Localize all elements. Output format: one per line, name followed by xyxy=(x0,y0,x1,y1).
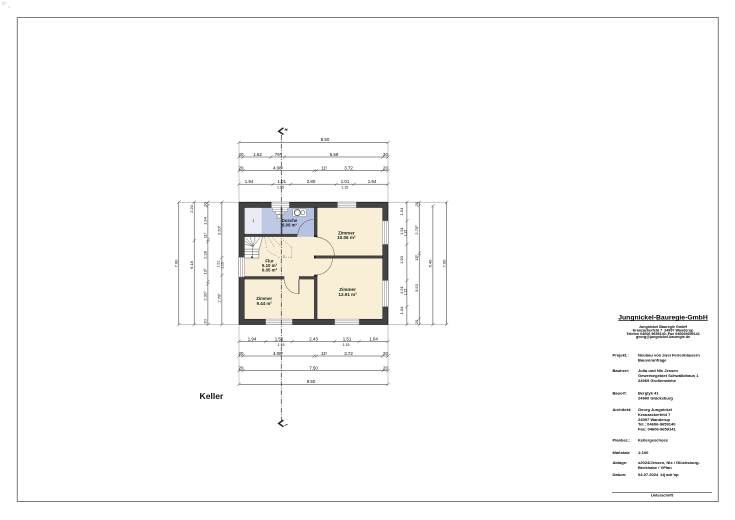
svg-text:24960 Glücksburg: 24960 Glücksburg xyxy=(638,395,673,400)
svg-text:20: 20 xyxy=(414,319,419,324)
svg-text:Architekt:: Architekt: xyxy=(613,407,632,412)
svg-text:20: 20 xyxy=(203,319,208,324)
svg-text:6.05 m²: 6.05 m² xyxy=(262,267,278,272)
svg-text:Unterschrift: Unterschrift xyxy=(651,493,674,498)
svg-text:Maßstab:: Maßstab: xyxy=(613,450,631,455)
svg-text:6.18: 6.18 xyxy=(189,260,194,269)
svg-text:1.94: 1.94 xyxy=(203,216,208,225)
svg-text:24969 Großenwiehe: 24969 Großenwiehe xyxy=(638,378,677,383)
svg-text:20: 20 xyxy=(239,152,244,157)
svg-text:Planbez.:: Planbez.: xyxy=(613,438,631,443)
svg-text:1.15: 1.15 xyxy=(278,343,285,347)
svg-text:12.91 m²: 12.91 m² xyxy=(338,292,357,297)
svg-text:1.94: 1.94 xyxy=(248,336,257,341)
svg-text:2.80: 2.80 xyxy=(307,179,316,184)
svg-text:1.90: 1.90 xyxy=(399,255,404,264)
svg-text:20: 20 xyxy=(383,365,388,370)
svg-text:5.58: 5.58 xyxy=(330,152,339,157)
svg-text:3.53: 3.53 xyxy=(414,283,419,292)
svg-text:1:100: 1:100 xyxy=(638,450,649,455)
svg-text:Jungnickel-Bauregie-GmbH: Jungnickel-Bauregie-GmbH xyxy=(618,314,708,321)
svg-text:8.50: 8.50 xyxy=(321,137,330,142)
svg-text:20: 20 xyxy=(414,201,419,206)
svg-text:1.15: 1.15 xyxy=(403,230,407,237)
svg-text:1.04: 1.04 xyxy=(399,306,404,315)
svg-text:20: 20 xyxy=(383,152,388,157)
svg-text:Bauvoranfrage: Bauvoranfrage xyxy=(638,357,667,362)
svg-text:10.06 m²: 10.06 m² xyxy=(337,235,356,240)
svg-text:3.72: 3.72 xyxy=(344,351,353,356)
svg-text:8.50: 8.50 xyxy=(307,379,316,384)
svg-text:7.00: 7.00 xyxy=(441,259,446,268)
svg-text:1.01: 1.01 xyxy=(341,179,350,184)
svg-text:Ablage:: Ablage: xyxy=(613,460,628,465)
svg-text:1.15: 1.15 xyxy=(403,289,407,296)
svg-text:6.40: 6.40 xyxy=(428,259,433,268)
svg-text:Bauort:: Bauort: xyxy=(613,391,627,396)
svg-text:1.51: 1.51 xyxy=(275,336,284,341)
svg-text:1.15: 1.15 xyxy=(220,262,224,269)
svg-text:Beckhabe / VPlan: Beckhabe / VPlan xyxy=(638,465,672,470)
svg-text:20: 20 xyxy=(239,365,244,370)
svg-text:3.72: 3.72 xyxy=(344,166,353,171)
svg-text:2.28: 2.28 xyxy=(203,250,208,259)
svg-text:1.95: 1.95 xyxy=(277,186,284,190)
svg-text:1.04: 1.04 xyxy=(369,336,378,341)
svg-text:2.43: 2.43 xyxy=(309,336,318,341)
svg-text:20: 20 xyxy=(383,166,388,171)
svg-text:Keller: Keller xyxy=(200,391,225,401)
svg-text:04.07.2024 klj adr’np: 04.07.2024 klj adr’np xyxy=(638,472,679,477)
svg-text:1.15: 1.15 xyxy=(341,186,348,190)
svg-text:Projekt.:: Projekt.: xyxy=(613,353,629,358)
svg-text:1.62: 1.62 xyxy=(253,152,262,157)
svg-text:1.94: 1.94 xyxy=(245,179,254,184)
svg-text:6.08 m²: 6.08 m² xyxy=(282,222,297,227)
svg-text:georg@jungnickel-bauregie.de: georg@jungnickel-bauregie.de xyxy=(636,335,690,339)
svg-text:1.94: 1.94 xyxy=(368,179,377,184)
svg-text:20: 20 xyxy=(383,351,388,356)
svg-text:2.20: 2.20 xyxy=(189,204,194,213)
svg-text:20: 20 xyxy=(239,351,244,356)
svg-text:1.51: 1.51 xyxy=(343,336,352,341)
svg-text:1.94: 1.94 xyxy=(399,207,404,216)
svg-text:Fax: 04606-9659141: Fax: 04606-9659141 xyxy=(638,427,677,432)
svg-text:Bauherr:: Bauherr: xyxy=(613,368,630,373)
svg-text:20: 20 xyxy=(203,202,208,207)
svg-text:20: 20 xyxy=(239,166,244,171)
svg-text:7.00: 7.00 xyxy=(174,259,179,268)
svg-text:Kellergeschoss: Kellergeschoss xyxy=(638,438,669,443)
svg-text:9.44 m²: 9.44 m² xyxy=(257,301,273,306)
svg-text:1.01: 1.01 xyxy=(278,179,287,184)
svg-text:7.50: 7.50 xyxy=(309,365,318,370)
svg-text:1.15: 1.15 xyxy=(343,343,350,347)
svg-text:Datum:: Datum: xyxy=(613,472,627,477)
